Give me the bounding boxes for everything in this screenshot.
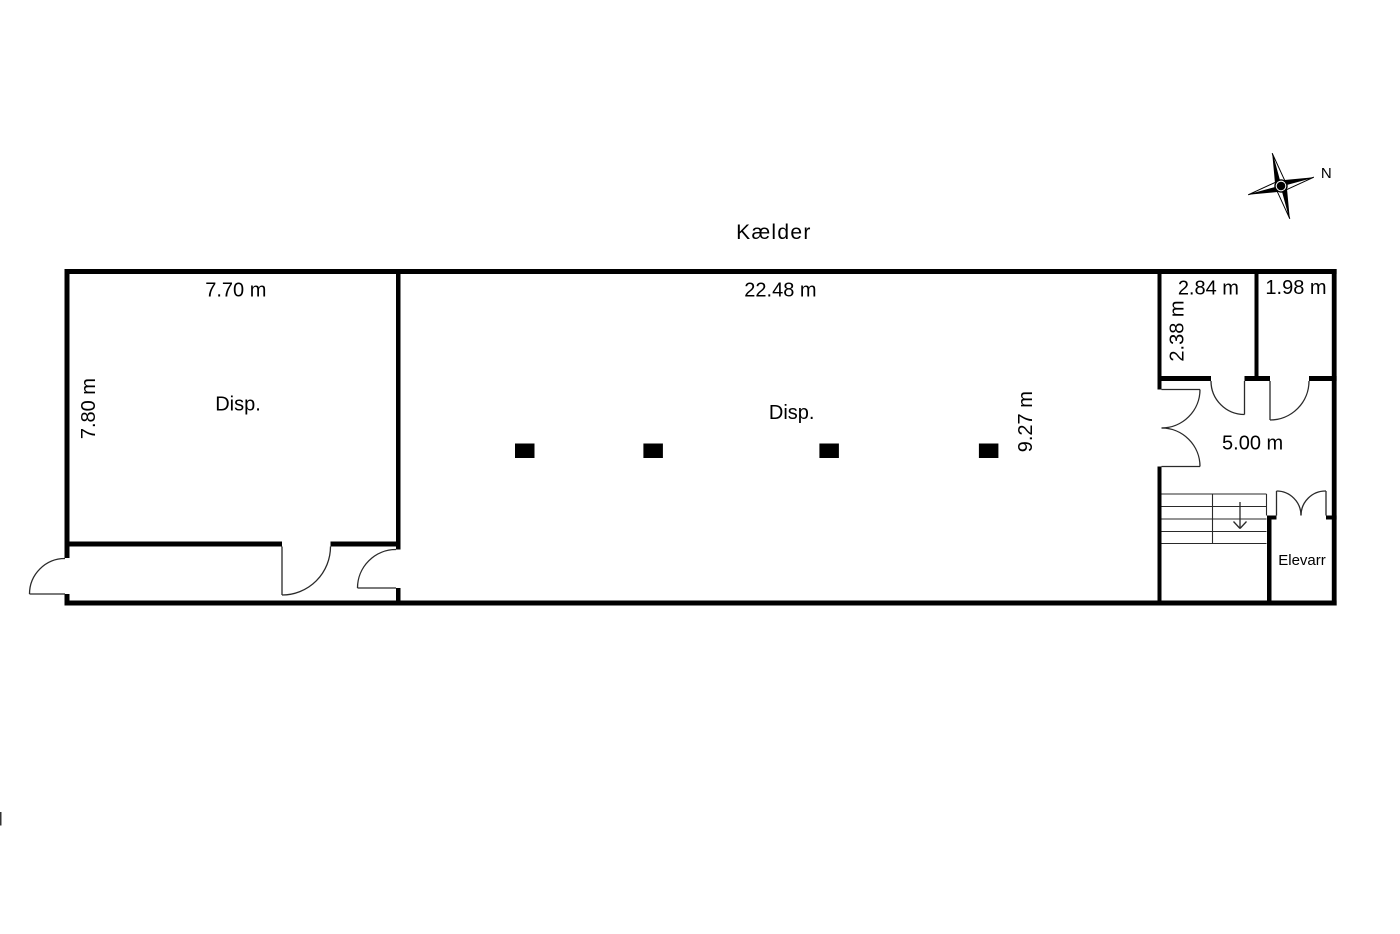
svg-text:7.80 m: 7.80 m bbox=[78, 378, 100, 439]
svg-text:Disp.: Disp. bbox=[215, 394, 261, 416]
svg-text:Elevarr: Elevarr bbox=[1278, 552, 1326, 569]
svg-text:1.98 m: 1.98 m bbox=[1265, 277, 1326, 299]
svg-text:5.00 m: 5.00 m bbox=[1222, 433, 1283, 455]
svg-text:22.48 m: 22.48 m bbox=[744, 279, 816, 301]
svg-text:2.38 m: 2.38 m bbox=[1167, 300, 1189, 361]
svg-text:N: N bbox=[1321, 165, 1332, 182]
svg-text:Disp.: Disp. bbox=[769, 402, 815, 424]
svg-text:Kælder: Kælder bbox=[736, 221, 812, 244]
svg-text:7.70 m: 7.70 m bbox=[205, 280, 266, 302]
svg-text:2.84 m: 2.84 m bbox=[1178, 278, 1239, 300]
svg-text:9.27 m: 9.27 m bbox=[1015, 391, 1037, 452]
